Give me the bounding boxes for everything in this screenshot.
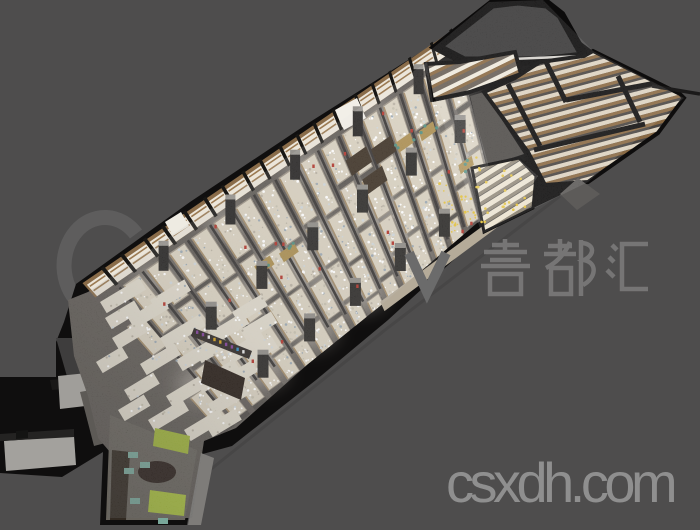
svg-text:csxdh.com: csxdh.com bbox=[446, 451, 674, 514]
